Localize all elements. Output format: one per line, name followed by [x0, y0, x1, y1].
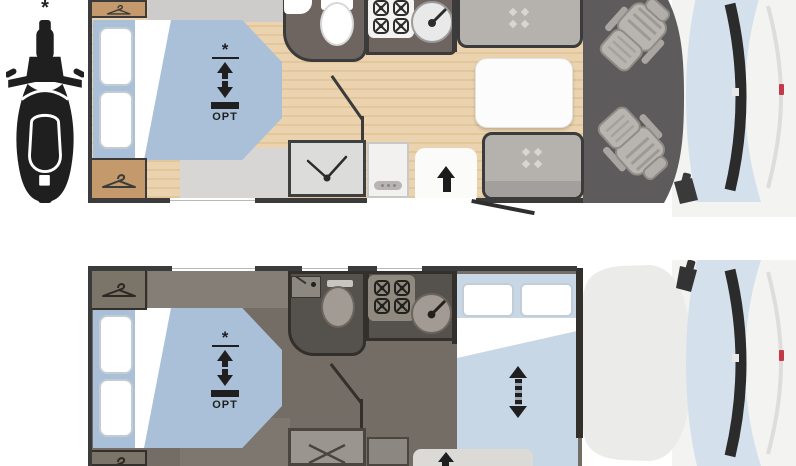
entry-door-area [413, 449, 533, 466]
arrow-down-icon [217, 369, 233, 386]
motorhome-floorplans: * [0, 0, 796, 466]
wardrobe [89, 450, 147, 466]
drop-down-bed-option-icon: * OPT [197, 332, 253, 411]
entry-arrow-icon [436, 452, 456, 466]
bed-extend-arrows-icon [509, 366, 527, 422]
pillow [99, 379, 133, 437]
faucet-icon [411, 293, 452, 334]
pillow [462, 283, 514, 317]
pillow [520, 283, 573, 317]
window [377, 266, 422, 271]
outer-wall [348, 266, 377, 271]
toilet-icon [321, 286, 355, 328]
shower-cross-icon [305, 443, 349, 465]
vehicle-front-roof [546, 260, 796, 466]
outer-wall [422, 266, 577, 271]
overcab-roof [583, 265, 692, 461]
wardrobe [89, 268, 147, 310]
hanger-icon [98, 453, 138, 466]
washbasin [291, 276, 321, 298]
divider [212, 345, 239, 347]
bed-bar [211, 390, 239, 397]
bathroom-door-wall [360, 399, 363, 429]
bed-side-wall [576, 268, 583, 438]
outer-wall [88, 268, 92, 466]
hob-burners-icon [372, 278, 412, 316]
arrow-up-icon [217, 350, 233, 367]
pillow [99, 315, 133, 374]
entry-step-cabinet [367, 437, 409, 466]
brand-badge [779, 350, 784, 361]
hanger-icon [98, 279, 138, 299]
shower [288, 428, 366, 466]
opt-asterisk: * [222, 332, 229, 343]
floorplan-night: * OPT [0, 0, 796, 466]
window [302, 266, 348, 271]
outer-wall [88, 266, 172, 271]
window [172, 266, 255, 271]
opt-label: OPT [212, 399, 238, 411]
outer-wall [255, 266, 302, 271]
floor-patch [148, 270, 288, 308]
